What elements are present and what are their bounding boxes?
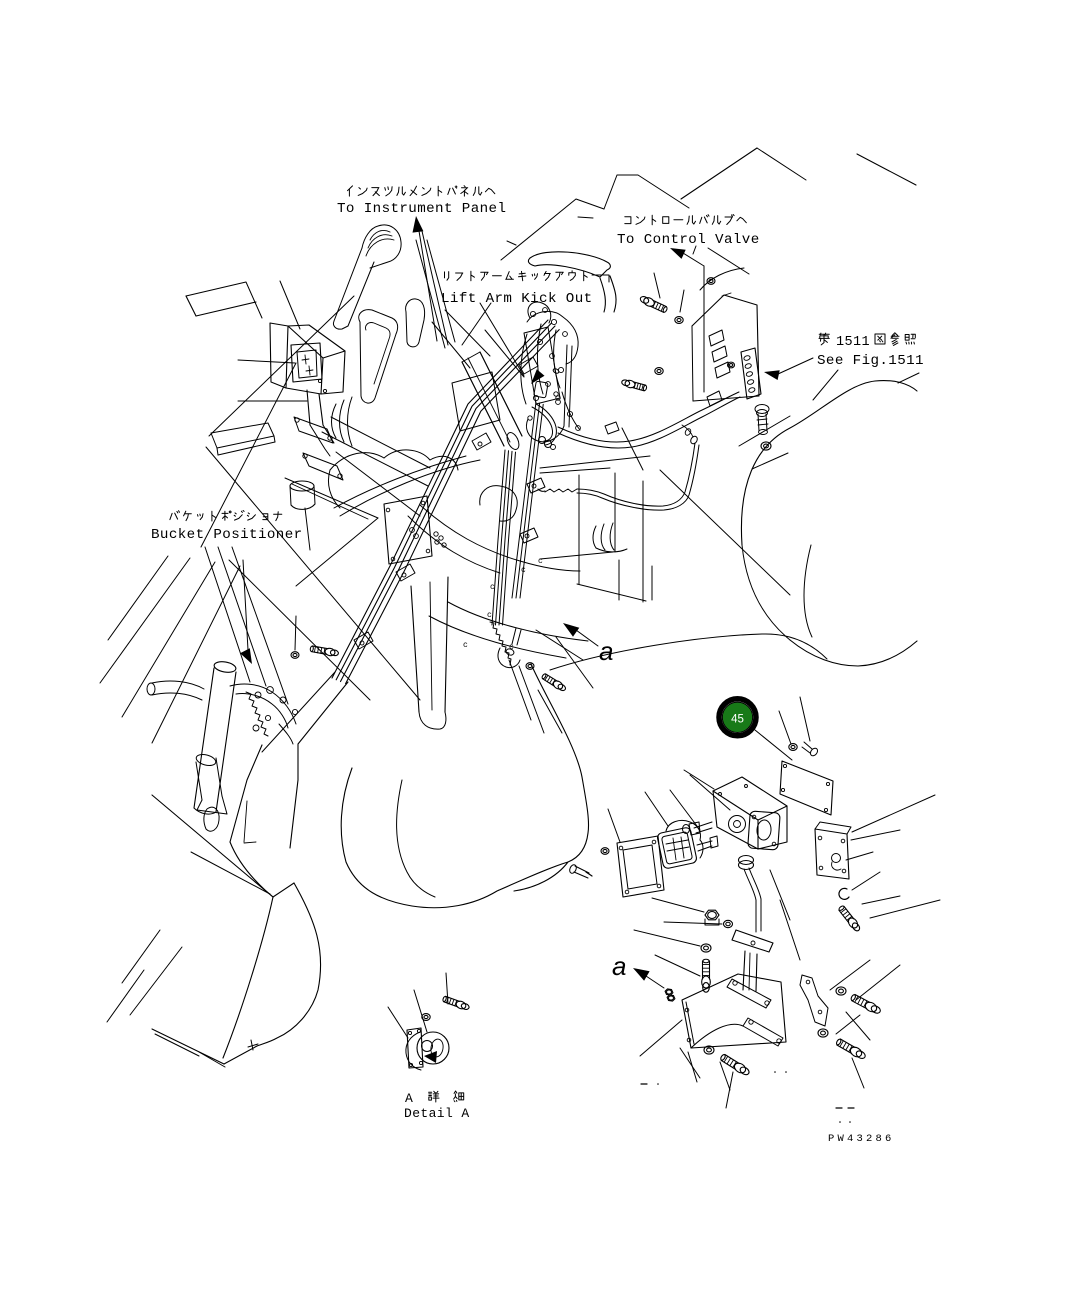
svg-text:A: A [405, 1091, 413, 1106]
svg-text:To Control Valve: To Control Valve [617, 232, 760, 248]
svg-text:c: c [538, 557, 543, 566]
svg-text:a: a [612, 951, 626, 981]
svg-text:a: a [599, 636, 613, 666]
svg-text:c: c [463, 641, 468, 650]
svg-text:PW43286: PW43286 [828, 1133, 895, 1145]
svg-text:To Instrument Panel: To Instrument Panel [337, 201, 506, 217]
svg-text:1511: 1511 [836, 335, 870, 350]
svg-text:c: c [487, 611, 492, 620]
svg-text:See Fig.1511: See Fig.1511 [817, 353, 924, 369]
svg-text:45: 45 [731, 714, 744, 726]
svg-text:Lift Arm Kick Out: Lift Arm Kick Out [441, 291, 593, 307]
svg-text:Detail A: Detail A [404, 1106, 470, 1121]
